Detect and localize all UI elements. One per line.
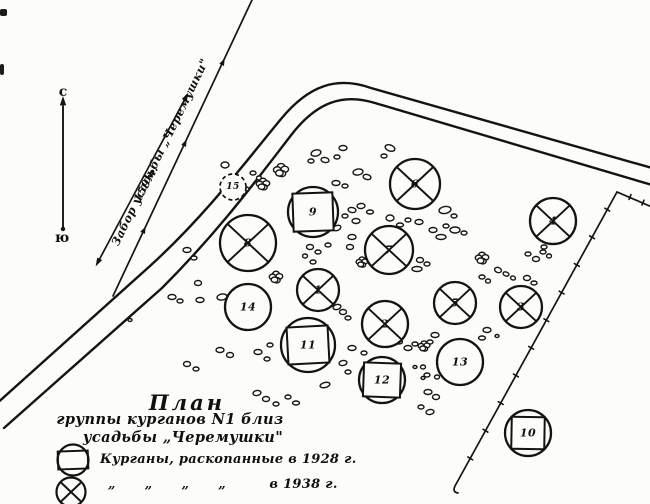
stone (443, 224, 449, 228)
kurgan-number: 14 (240, 301, 256, 314)
stone (168, 295, 176, 300)
stone (436, 235, 446, 240)
stone (352, 219, 360, 224)
stone (361, 351, 367, 355)
stone (285, 395, 291, 399)
stone (321, 157, 330, 163)
stone (308, 159, 314, 163)
stone (347, 245, 354, 250)
stone (417, 258, 424, 263)
stone (540, 250, 546, 254)
stone (227, 353, 234, 358)
stone (253, 390, 262, 396)
stone (413, 366, 417, 369)
stone (418, 405, 424, 409)
stone (533, 257, 540, 262)
stone (254, 350, 262, 355)
stone (177, 299, 183, 303)
stone (184, 362, 191, 367)
stone (307, 245, 314, 250)
stone (547, 254, 552, 258)
kurgan-number: 10 (520, 427, 536, 440)
stone (339, 360, 348, 366)
stone (332, 181, 340, 186)
stone (293, 401, 300, 405)
stone (348, 235, 356, 240)
stone (405, 218, 411, 222)
stone (264, 357, 270, 361)
stone (325, 243, 331, 247)
stone (479, 275, 485, 279)
stone (340, 310, 347, 315)
legend-icon-excavated-1938 (54, 475, 90, 504)
stone-clump (273, 164, 288, 177)
stone (345, 370, 351, 374)
stone (431, 333, 439, 338)
kurgan-number: 2 (381, 318, 389, 331)
stone (510, 275, 516, 280)
stone (479, 336, 486, 340)
kurgan-number: 5 (451, 297, 459, 310)
scan-artifact (0, 64, 4, 75)
stone (531, 281, 537, 285)
kurgan-number: 13 (452, 356, 468, 369)
stone-clump (269, 271, 282, 283)
stone (342, 214, 348, 218)
stone (451, 214, 457, 218)
stone (263, 397, 270, 402)
kurgan-number: 11 (300, 339, 316, 352)
stone (334, 155, 340, 159)
stone (221, 162, 229, 168)
stone (195, 281, 202, 286)
kurgan-number: 4 (549, 215, 557, 228)
stone (367, 210, 374, 214)
scan-artifact (0, 9, 7, 16)
stone (421, 365, 426, 369)
compass-south-label: ю (55, 230, 69, 246)
stone (315, 250, 321, 254)
kurgan-number: 3 (517, 301, 525, 314)
stone (483, 328, 491, 333)
stone (357, 203, 365, 209)
stone (541, 245, 547, 249)
stone (345, 316, 351, 320)
stone (495, 335, 499, 338)
plan-title-line2: группы курганов N1 близ (56, 411, 283, 428)
stone (250, 171, 256, 175)
stone (320, 381, 331, 388)
stone (461, 231, 467, 235)
stone (502, 271, 509, 277)
stone (424, 390, 432, 395)
stone (193, 367, 199, 371)
stone (267, 343, 273, 347)
scanned-plan-page: Забор усадьбы „Черемушки" 159м. с ю План… (0, 0, 650, 504)
stone (415, 220, 423, 225)
kurgan-number: 7 (385, 244, 393, 257)
stone (438, 206, 451, 215)
stone (381, 154, 387, 158)
stone (384, 143, 395, 152)
stone (310, 149, 321, 157)
stone (353, 168, 364, 176)
stone (433, 395, 440, 400)
legend-label-1938: „ „ „ „ в 1938 г. (108, 477, 338, 492)
stone (191, 256, 197, 260)
stone (486, 279, 491, 283)
kurgan-number: 9 (309, 206, 317, 219)
stone (524, 276, 531, 281)
stone (525, 252, 531, 256)
stone-clump (418, 341, 430, 351)
stone (412, 342, 418, 346)
stone-clump (475, 252, 488, 264)
kurgan-number: 1 (314, 284, 322, 297)
stone (348, 207, 357, 213)
stone (494, 266, 502, 273)
stone (362, 174, 371, 181)
stone (310, 260, 316, 264)
stone (273, 402, 279, 406)
stone (429, 228, 437, 233)
stone (404, 346, 412, 351)
stone (435, 375, 440, 379)
north-arrow (60, 96, 66, 231)
kurgan-number: 6 (411, 178, 419, 191)
stone (348, 346, 356, 351)
road (0, 83, 650, 428)
stone (450, 227, 460, 233)
stone (216, 348, 224, 353)
stone (196, 298, 204, 303)
plan-title-line3: усадьбы „Черемушки" (83, 429, 283, 446)
legend-label-1928: Курганы, раскопанные в 1928 г. (100, 452, 357, 467)
kurgan-number: 12 (374, 374, 390, 387)
stone (339, 146, 347, 151)
stone (183, 248, 191, 253)
kurgan-number: 8 (244, 237, 252, 250)
stone (412, 267, 422, 272)
kurgan-number: 15 (226, 182, 240, 192)
stone (128, 319, 132, 322)
compass-north-label: с (59, 84, 68, 100)
stone (342, 184, 348, 188)
stone (303, 254, 308, 258)
stone (426, 409, 435, 415)
stone (424, 262, 430, 266)
stone (421, 377, 425, 380)
stone-field (128, 143, 552, 415)
stone (386, 215, 394, 221)
